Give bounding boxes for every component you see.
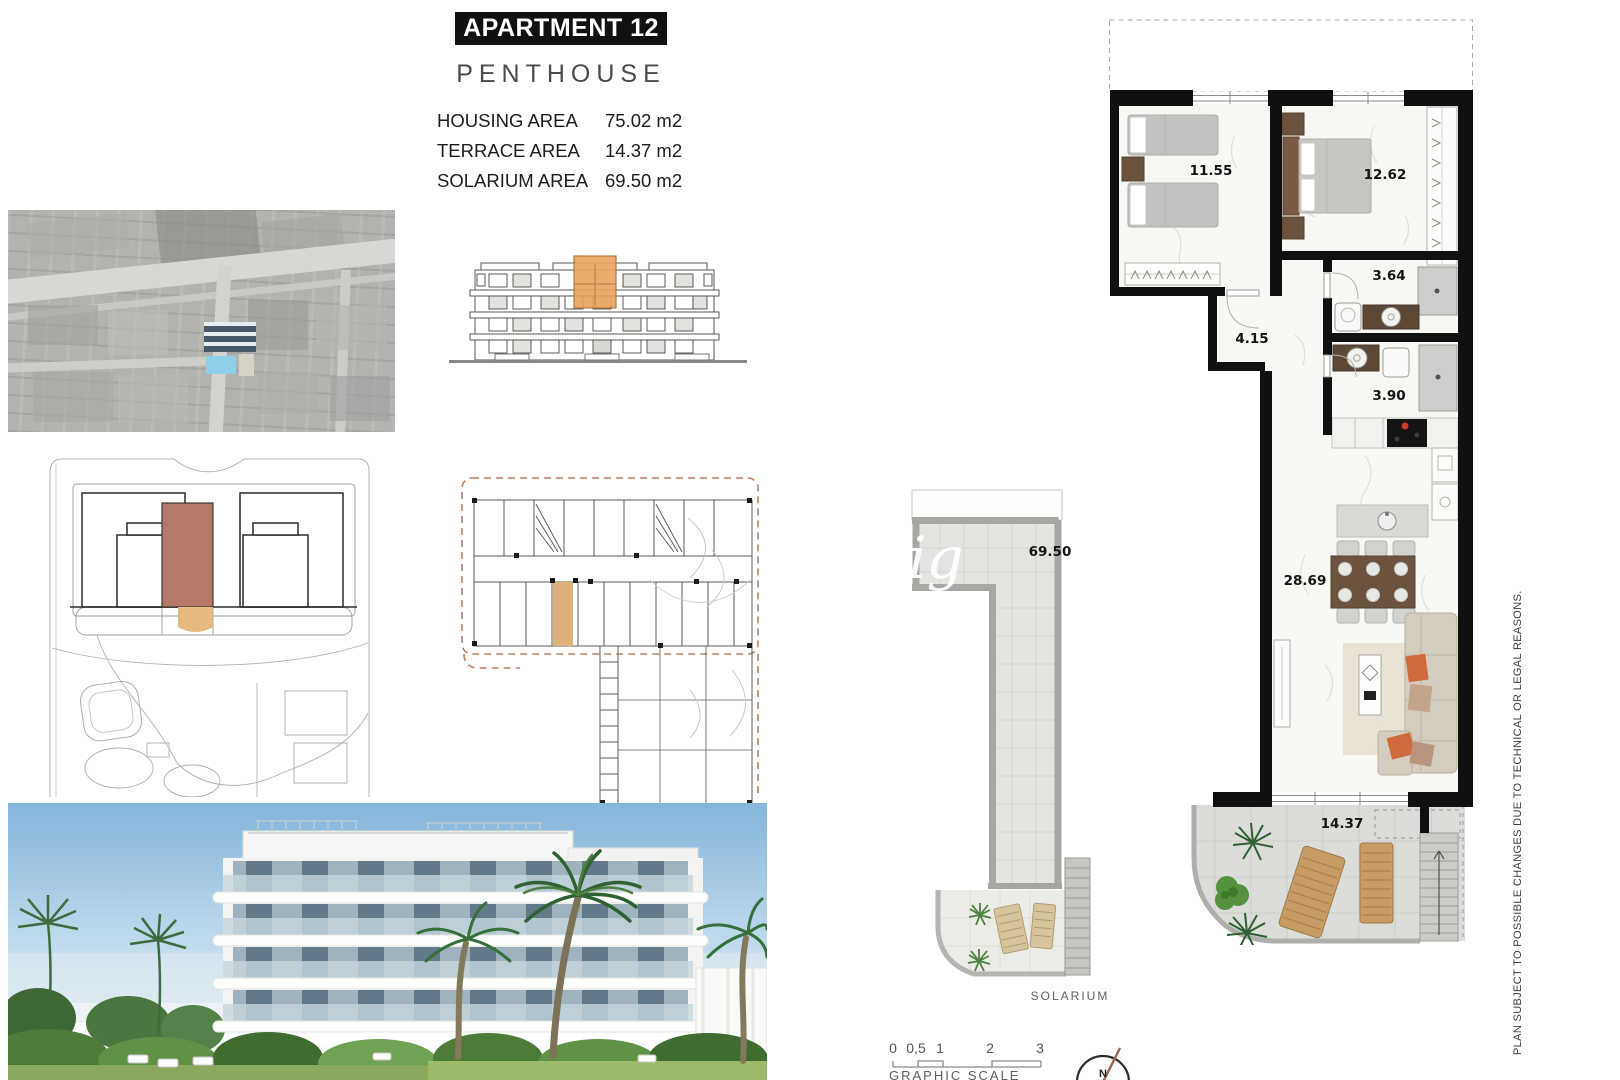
north-compass: N xyxy=(1072,1040,1138,1080)
site-plan-paths xyxy=(52,635,368,797)
room-label-bathroom-2: 3.90 xyxy=(1361,388,1417,404)
dining-set xyxy=(1331,541,1415,623)
room-label-bathroom-1: 3.64 xyxy=(1361,268,1417,284)
room-label-hallway: 4.15 xyxy=(1224,331,1280,347)
key-floor-plan-drawing xyxy=(450,460,770,805)
apartment-title-text: APARTMENT 12 xyxy=(463,14,659,43)
aerial-block xyxy=(33,372,113,422)
main-floor-plan xyxy=(1075,15,1475,945)
key-plan-tree-arcs xyxy=(650,518,750,738)
aerial-block xyxy=(108,310,168,355)
aerial-deck xyxy=(239,354,254,376)
pillow-orange xyxy=(1405,654,1428,683)
area-label: SOLARIUM AREA xyxy=(437,170,605,192)
photo-building xyxy=(213,821,767,1053)
room-label-living: 28.69 xyxy=(1277,573,1333,589)
aerial-block xyxy=(258,372,318,414)
site-plan-unit-highlight xyxy=(162,503,213,607)
area-row-housing: HOUSING AREA 75.02 m2 xyxy=(437,106,697,136)
area-value: 69.50 m2 xyxy=(605,170,682,192)
scale-caption: GRAPHIC SCALE xyxy=(889,1068,1020,1080)
room-label-terrace: 14.37 xyxy=(1314,816,1370,832)
area-table: HOUSING AREA 75.02 m2 TERRACE AREA 14.37… xyxy=(437,106,697,196)
aerial-block xyxy=(330,376,390,421)
plan-sheet: APARTMENT 12 PENTHOUSE HOUSING AREA 75.0… xyxy=(0,0,1620,1080)
site-plan-terrace-highlight xyxy=(178,607,213,632)
area-value: 14.37 m2 xyxy=(605,140,682,162)
solarium-caption: SOLARIUM xyxy=(1030,989,1110,1003)
apartment-subtitle: PENTHOUSE xyxy=(445,60,677,89)
area-row-solarium: SOLARIUM AREA 69.50 m2 xyxy=(437,166,697,196)
plan-disclaimer: PLAN SUBJECT TO POSSIBLE CHANGES DUE TO … xyxy=(1512,625,1524,1055)
room-label-solarium: 69.50 xyxy=(1022,544,1078,560)
aerial-highlighted-building xyxy=(204,322,256,382)
aerial-location-photo xyxy=(8,210,395,432)
building-elevation-drawing xyxy=(437,250,752,372)
aerial-block xyxy=(118,375,188,423)
cooktop-burner xyxy=(1402,423,1409,430)
aerial-block xyxy=(28,305,98,345)
site-plan-drawing xyxy=(42,443,378,797)
key-plan-door-markers xyxy=(472,498,752,805)
compass-north-label: N xyxy=(1099,1068,1107,1080)
coffee-table xyxy=(1359,655,1381,715)
elevation-penthouse-highlight xyxy=(574,256,616,308)
area-label: TERRACE AREA xyxy=(437,140,605,162)
solarium-watermark: ig xyxy=(908,524,964,592)
aerial-block xyxy=(248,300,308,350)
apartment-title: APARTMENT 12 xyxy=(455,12,667,45)
terrace-stairs xyxy=(1420,833,1458,941)
aerial-building-roof xyxy=(204,322,256,352)
aerial-pool xyxy=(206,356,236,374)
room-label-bedroom-2: 12.62 xyxy=(1357,167,1413,183)
room-label-bedroom-1: 11.55 xyxy=(1183,163,1239,179)
area-row-terrace: TERRACE AREA 14.37 m2 xyxy=(437,136,697,166)
aerial-block xyxy=(316,305,386,350)
key-plan-unit-highlight xyxy=(553,582,573,646)
building-render-photo xyxy=(8,803,767,1080)
solarium-above-outline xyxy=(1110,20,1473,92)
area-label: HOUSING AREA xyxy=(437,110,605,132)
area-value: 75.02 m2 xyxy=(605,110,682,132)
